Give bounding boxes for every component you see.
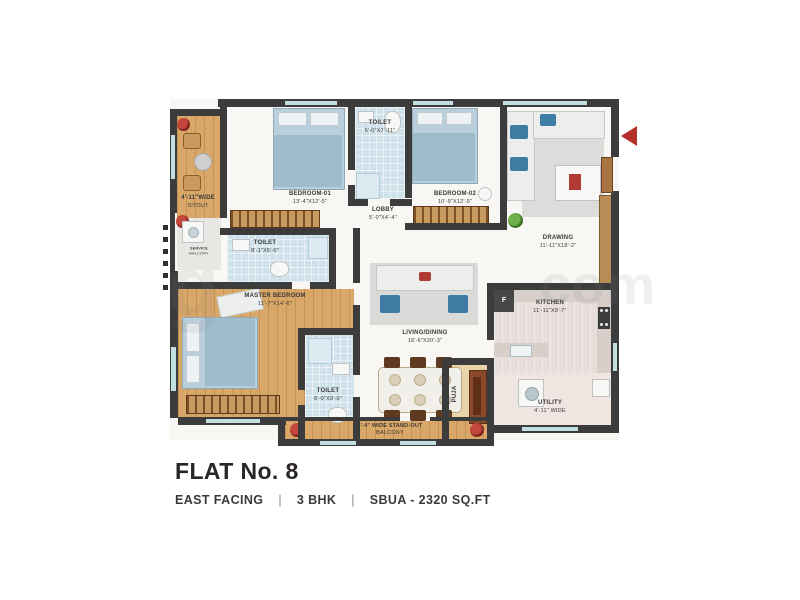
wall xyxy=(220,228,336,235)
wall xyxy=(487,358,494,439)
cushion xyxy=(540,114,556,126)
room-dims: 11'-11"X9'-7" xyxy=(505,308,595,315)
room-dims: BALCONY xyxy=(315,430,465,437)
plant-icon xyxy=(508,213,523,228)
room-name: LIVING/DINING xyxy=(402,330,447,336)
railing-tick xyxy=(163,249,168,254)
shrine-inner xyxy=(473,377,481,415)
room-label-puja: PUJA xyxy=(452,374,460,414)
main-door xyxy=(601,157,613,193)
railing-tick xyxy=(163,285,168,290)
room-label-bedroom1: BEDROOM-01 13'-4"X12'-5" xyxy=(255,191,365,206)
table-decor xyxy=(569,174,581,190)
burner xyxy=(600,309,603,312)
plate xyxy=(414,374,426,386)
wall xyxy=(178,282,292,289)
wall xyxy=(487,283,494,340)
page-subtitle: EAST FACING | 3 BHK | SBUA - 2320 SQ.FT xyxy=(175,493,491,507)
railing-tick xyxy=(163,273,168,278)
cushion xyxy=(419,272,431,281)
dining-chair xyxy=(410,357,426,368)
room-name: BEDROOM-02 xyxy=(434,191,476,197)
utility-sink xyxy=(592,379,610,397)
room-dims: 5'-0"X7'-11" xyxy=(353,128,407,135)
room-label-balcony: 2'-4" WIDE STAND-OUT BALCONY xyxy=(315,423,465,437)
wardrobe xyxy=(186,395,280,414)
room-dims: 4'-11" WIDE xyxy=(500,408,600,415)
plate xyxy=(389,374,401,386)
wall xyxy=(170,213,175,271)
wall xyxy=(329,228,336,289)
sitout-chair xyxy=(183,175,201,191)
puja-shrine xyxy=(469,370,487,424)
wall xyxy=(500,106,507,230)
toilet-wc xyxy=(270,261,289,277)
dining-chair xyxy=(384,357,400,368)
entry-arrow-icon xyxy=(621,126,637,146)
wall xyxy=(298,335,305,390)
room-dims: 11'-11"X18'-2" xyxy=(505,243,611,250)
plate xyxy=(389,394,401,406)
bed xyxy=(412,108,478,184)
room-name: TOILET xyxy=(254,240,276,246)
kitchen-sink xyxy=(510,345,532,357)
window-marker xyxy=(503,101,587,105)
cushion xyxy=(510,125,528,139)
wall xyxy=(442,358,487,365)
washer-door xyxy=(188,227,199,238)
wardrobe xyxy=(230,210,320,228)
room-label-service-balcony: SERVICE BALCONY xyxy=(181,246,217,256)
wall xyxy=(298,328,360,335)
window-marker xyxy=(400,441,436,445)
room-label-kitchen: KITCHEN 11'-11"X9'-7" xyxy=(505,300,595,315)
pillow xyxy=(278,112,307,126)
pillow xyxy=(186,323,200,352)
room-label-toilet-mid: TOILET 8'-1"X5'-0" xyxy=(235,240,295,255)
wall xyxy=(611,191,619,291)
railing-tick xyxy=(163,237,168,242)
room-name: 4'-11"WIDE xyxy=(181,195,215,201)
stove xyxy=(598,307,610,329)
wall xyxy=(220,106,227,218)
railing-tick xyxy=(163,261,168,266)
blanket xyxy=(205,318,255,386)
room-label-sitout: 4'-11"WIDE SITOUT xyxy=(176,195,220,210)
wall xyxy=(353,305,360,375)
room-dims: SITOUT xyxy=(176,203,220,210)
sink xyxy=(332,363,350,375)
window-marker xyxy=(320,441,356,445)
title-block: FLAT No. 8 EAST FACING | 3 BHK | SBUA - … xyxy=(175,458,491,507)
pillow xyxy=(186,355,200,383)
room-label-living-dining: LIVING/DINING 16'-6"X20'-3" xyxy=(370,330,480,345)
washing-machine xyxy=(182,221,204,243)
room-label-lobby: LOBBY 5'-0"X4'-4" xyxy=(355,207,411,222)
blanket xyxy=(413,133,475,181)
window-marker xyxy=(413,101,453,105)
sitout-table xyxy=(194,153,212,171)
room-name: 2'-4" WIDE STAND-OUT xyxy=(357,423,422,429)
washer-door xyxy=(525,387,539,401)
burner xyxy=(605,309,608,312)
wall xyxy=(298,405,305,439)
plant-icon xyxy=(177,118,190,131)
room-dims: 10'-9"X12'-5" xyxy=(405,199,505,206)
window-marker xyxy=(285,101,337,105)
coffee-table xyxy=(555,165,601,201)
burner xyxy=(600,323,603,326)
plate xyxy=(414,394,426,406)
room-label-drawing: DRAWING 11'-11"X18'-2" xyxy=(505,235,611,250)
shower-area xyxy=(308,338,332,364)
wall xyxy=(170,109,227,116)
wall xyxy=(405,223,507,230)
room-name: DRAWING xyxy=(543,235,573,241)
pillow xyxy=(446,112,472,125)
kitchen-counter xyxy=(494,343,548,357)
page: F 4'-11"WIDE SITOUT BEDROOM-01 13'-4"X12… xyxy=(0,0,800,600)
room-dims: 13'-4"X12'-5" xyxy=(255,199,365,206)
room-dims: 11'-7"X14'-6" xyxy=(200,301,350,308)
wall xyxy=(348,106,355,170)
room-name: PUJA xyxy=(452,385,458,402)
room-label-bedroom2: BEDROOM-02 10'-9"X12'-5" xyxy=(405,191,505,206)
dining-chair xyxy=(410,410,426,421)
pillow xyxy=(417,112,443,125)
sofa xyxy=(376,265,474,291)
wall xyxy=(430,417,487,421)
wall xyxy=(278,439,494,446)
bed xyxy=(273,108,345,190)
wall xyxy=(353,228,360,283)
sitout-chair xyxy=(183,133,201,149)
railing-tick xyxy=(163,225,168,230)
separator: | xyxy=(278,493,282,507)
facing-text: EAST FACING xyxy=(175,493,263,507)
cushion xyxy=(510,157,528,171)
room-name: TOILET xyxy=(369,120,391,126)
room-label-toilet-top: TOILET 5'-0"X7'-11" xyxy=(353,120,407,135)
room-dims: 6'-0"X9'-0" xyxy=(302,396,354,403)
wall xyxy=(487,283,619,290)
room-name: UTILITY xyxy=(538,400,562,406)
plant-icon xyxy=(470,423,484,437)
room-name: KITCHEN xyxy=(536,300,564,306)
room-dims: 5'-0"X4'-4" xyxy=(355,215,411,222)
window-marker xyxy=(522,427,578,431)
bed xyxy=(182,317,258,389)
page-title: FLAT No. 8 xyxy=(175,458,491,485)
wall xyxy=(611,99,619,157)
room-dims: BALCONY xyxy=(181,251,217,256)
bhk-text: 3 BHK xyxy=(297,493,337,507)
burner xyxy=(605,323,608,326)
room-label-utility: UTILITY 4'-11" WIDE xyxy=(500,400,600,415)
room-name: LOBBY xyxy=(372,207,394,213)
room-name: BEDROOM-01 xyxy=(289,191,331,197)
shower-area xyxy=(308,237,328,259)
room-name: SERVICE xyxy=(190,246,208,250)
room-name: MASTER BEDROOM xyxy=(244,293,305,299)
wall xyxy=(170,271,178,418)
separator: | xyxy=(351,493,355,507)
accent-chair xyxy=(448,295,468,313)
accent-chair xyxy=(380,295,400,313)
room-dims: 16'-6"X20'-3" xyxy=(370,338,480,345)
kitchen-counter xyxy=(597,290,611,373)
window-marker xyxy=(206,419,260,423)
window-marker xyxy=(171,135,175,179)
wardrobe xyxy=(413,206,489,224)
pillow xyxy=(310,112,339,126)
room-name: TOILET xyxy=(317,388,339,394)
floor-plan: F 4'-11"WIDE SITOUT BEDROOM-01 13'-4"X12… xyxy=(170,95,628,450)
sbua-text: SBUA - 2320 SQ.FT xyxy=(370,493,491,507)
room-dims: 8'-1"X5'-0" xyxy=(235,248,295,255)
room-label-master-bedroom: MASTER BEDROOM 11'-7"X14'-6" xyxy=(200,293,350,308)
window-marker xyxy=(613,343,617,371)
blanket xyxy=(274,135,342,187)
room-label-toilet-bottom: TOILET 6'-0"X9'-0" xyxy=(302,388,354,403)
window-marker xyxy=(171,347,176,391)
dining-table xyxy=(378,367,462,413)
